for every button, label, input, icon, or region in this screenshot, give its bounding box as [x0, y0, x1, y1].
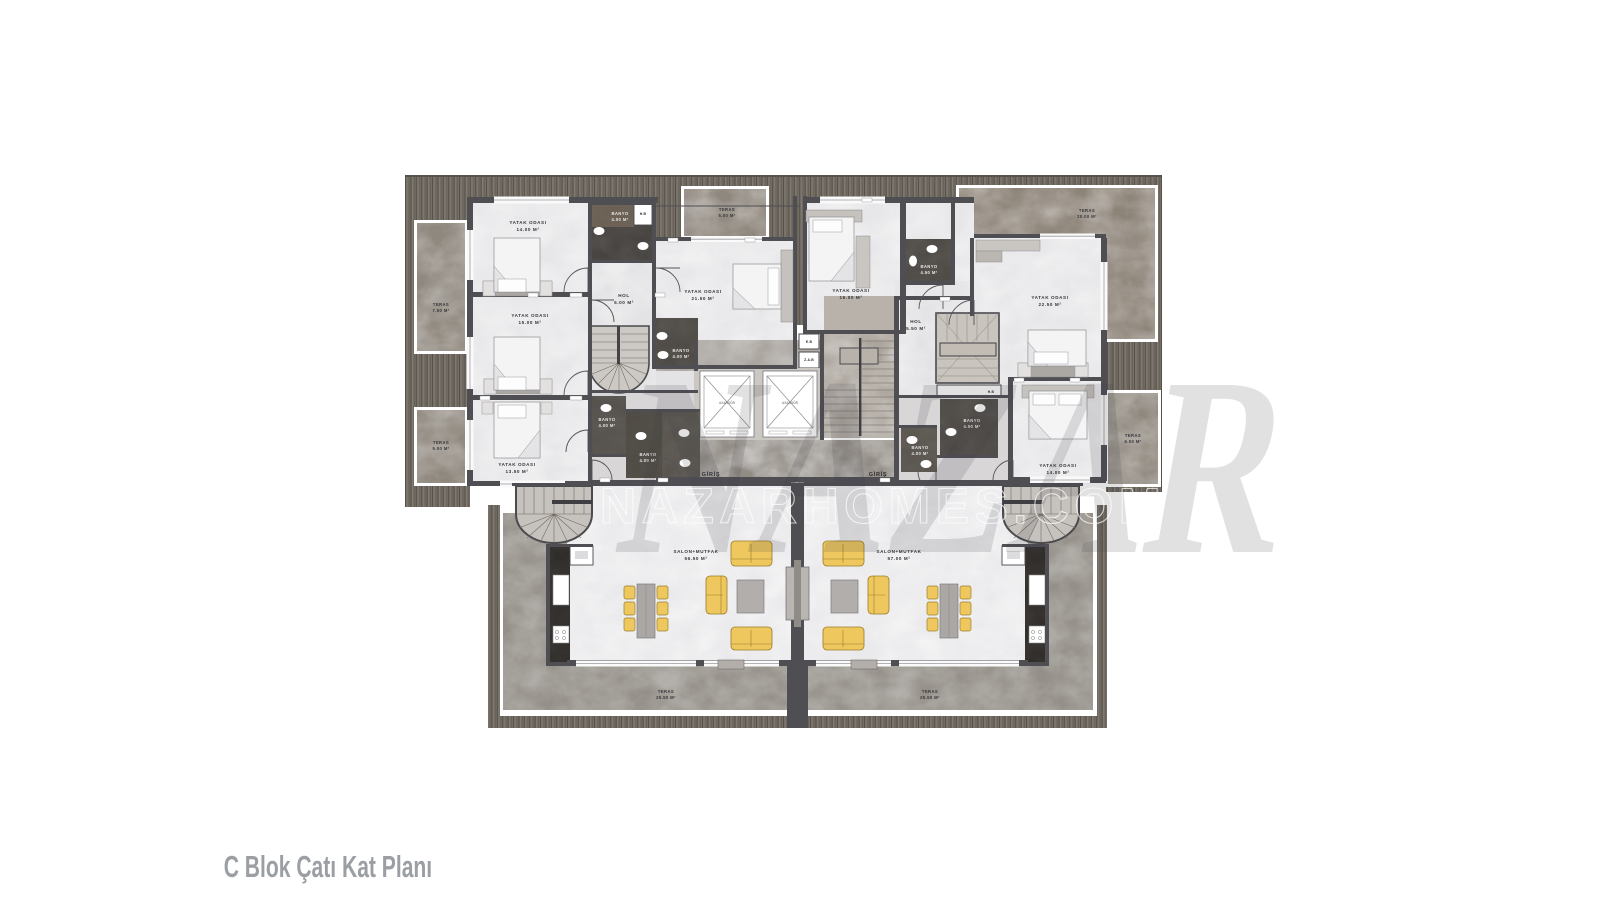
- svg-text:TERAS: TERAS: [658, 689, 674, 694]
- svg-text:TERAS: TERAS: [1079, 208, 1095, 213]
- svg-text:C Blok Çatı Kat Planı: C Blok Çatı Kat Planı: [224, 849, 432, 884]
- svg-text:NAZAR: NAZAR: [602, 325, 1313, 608]
- svg-text:YATAK ODASI: YATAK ODASI: [498, 462, 535, 467]
- svg-text:TERAS: TERAS: [922, 689, 938, 694]
- svg-text:H.B: H.B: [640, 212, 647, 216]
- svg-text:21.50 M²: 21.50 M²: [692, 296, 715, 301]
- svg-text:TERAS: TERAS: [719, 207, 735, 212]
- svg-text:HOL: HOL: [618, 293, 630, 298]
- svg-text:YATAK ODASI: YATAK ODASI: [511, 313, 548, 318]
- svg-text:BANYO: BANYO: [611, 211, 628, 216]
- svg-text:TERAS: TERAS: [433, 440, 449, 445]
- svg-text:YATAK ODASI: YATAK ODASI: [509, 220, 546, 225]
- svg-text:5.00 M²: 5.00 M²: [719, 213, 736, 218]
- svg-text:YATAK ODASI: YATAK ODASI: [684, 289, 721, 294]
- svg-text:25.50 M²: 25.50 M²: [920, 695, 940, 700]
- svg-text:YATAK ODASI: YATAK ODASI: [832, 288, 869, 293]
- svg-text:BANYO: BANYO: [920, 264, 937, 269]
- svg-text:4.00 M²: 4.00 M²: [612, 217, 629, 222]
- svg-text:4.00 M²: 4.00 M²: [599, 423, 616, 428]
- svg-text:TERAS: TERAS: [433, 302, 449, 307]
- svg-text:22.50 M²: 22.50 M²: [1039, 302, 1062, 307]
- svg-text:7.50 M²: 7.50 M²: [433, 308, 450, 313]
- svg-text:NAZARHOMES.COM: NAZARHOMES.COM: [600, 478, 1166, 534]
- svg-text:20.00 M²: 20.00 M²: [1077, 214, 1097, 219]
- svg-text:YATAK ODASI: YATAK ODASI: [1031, 295, 1068, 300]
- svg-text:5.00 M²: 5.00 M²: [614, 300, 634, 305]
- svg-text:HOL: HOL: [910, 319, 922, 324]
- svg-text:15.00 M²: 15.00 M²: [519, 320, 542, 325]
- svg-text:BANYO: BANYO: [598, 417, 615, 422]
- svg-text:14.00 M²: 14.00 M²: [517, 227, 540, 232]
- svg-text:4.50 M²: 4.50 M²: [921, 270, 938, 275]
- svg-text:13.50 M²: 13.50 M²: [506, 469, 529, 474]
- svg-text:5.00 M²: 5.00 M²: [433, 446, 450, 451]
- svg-text:16.00 M²: 16.00 M²: [840, 295, 863, 300]
- svg-text:25.50 M²: 25.50 M²: [656, 695, 676, 700]
